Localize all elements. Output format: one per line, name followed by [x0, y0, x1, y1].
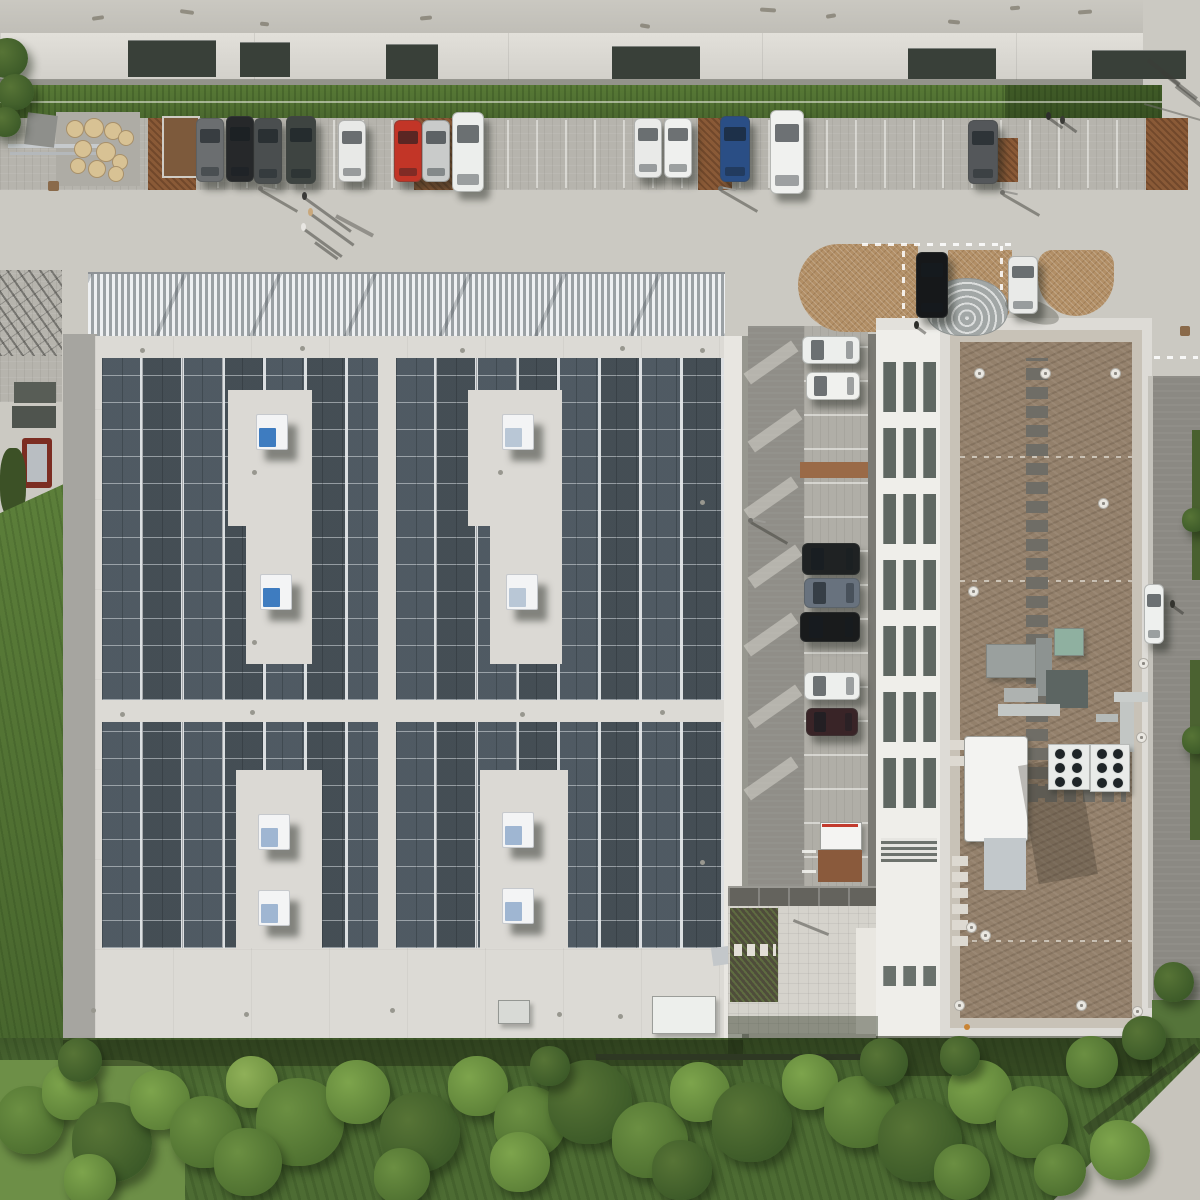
person	[1170, 600, 1175, 608]
roof-anchor-dot	[620, 346, 625, 351]
car	[254, 118, 282, 184]
tree	[58, 1038, 102, 1082]
fan-blade-icon	[1054, 762, 1066, 774]
walkway-canopy	[728, 886, 878, 908]
roof-skylight	[260, 574, 292, 610]
roof-anchor-dot	[91, 1008, 96, 1013]
car-windshield	[342, 131, 362, 144]
roof-anchor-dot	[120, 712, 125, 717]
roof-skylight	[502, 812, 534, 848]
car-rear-window	[1148, 630, 1161, 638]
fan-blade-icon	[1112, 748, 1124, 760]
cutout-tr-a	[468, 390, 562, 526]
car-windshield	[814, 712, 826, 732]
fan-unit-1	[1048, 744, 1090, 790]
lane-brown-pavers	[800, 462, 868, 478]
street-lamp-shadow	[720, 189, 758, 213]
car	[226, 116, 254, 182]
car	[968, 120, 998, 184]
office-facade-window	[883, 692, 896, 742]
roof-anchor-dot	[140, 348, 145, 353]
manhole-small	[48, 181, 59, 191]
car	[806, 708, 858, 736]
tree	[374, 1148, 430, 1200]
tree	[530, 1046, 570, 1086]
car-rear-window	[291, 169, 311, 178]
car-rear-window	[343, 168, 362, 176]
roof-vent	[1076, 1000, 1087, 1011]
roof-vent	[1110, 368, 1121, 379]
roof-anchor-dot	[498, 470, 503, 475]
tree	[1154, 962, 1194, 1002]
tree	[1182, 726, 1200, 754]
tree	[652, 1140, 712, 1200]
top-building-window	[908, 48, 996, 79]
car-windshield	[724, 127, 745, 141]
tree	[1034, 1144, 1086, 1196]
office-facade-window	[883, 966, 896, 986]
roof-skylight	[502, 888, 534, 924]
boundary-fence-dark	[596, 1054, 882, 1060]
person	[308, 208, 313, 216]
office-facade-window	[903, 560, 916, 610]
office-facade-window	[883, 758, 896, 808]
street-lamp-base	[718, 186, 723, 191]
roof-vent	[968, 586, 979, 597]
office-facade-window	[903, 494, 916, 544]
roof-anchor-dot	[252, 470, 257, 475]
skylight-glass	[261, 904, 278, 923]
planter-paver-row	[734, 944, 776, 956]
office-facade-window	[883, 626, 896, 676]
pallet-material	[70, 158, 86, 174]
car-rear-window	[846, 583, 854, 603]
roof-dirt-mark	[260, 22, 269, 27]
fan-unit-2	[1090, 744, 1130, 792]
lane-mulch-patch	[818, 850, 862, 882]
tree	[1122, 1016, 1166, 1060]
office-facade-window	[923, 758, 936, 808]
cutout-tl-a	[228, 390, 312, 526]
car-windshield	[813, 676, 826, 696]
metal-grate-2	[12, 406, 56, 428]
roof-vent	[980, 930, 991, 941]
car-rear-window	[846, 548, 854, 570]
fan-blade-icon	[1096, 748, 1108, 760]
roof-anchor-dot	[244, 1012, 249, 1017]
hvac-tent-lower	[984, 838, 1026, 890]
car-windshield	[809, 616, 823, 637]
car	[196, 118, 224, 182]
roof-skylight	[256, 414, 288, 450]
car-windshield	[457, 125, 480, 142]
tree	[214, 1128, 282, 1196]
car-windshield	[200, 129, 220, 143]
skylight-glass	[505, 428, 522, 447]
car	[804, 578, 860, 608]
solar-building-shadow	[63, 1040, 743, 1066]
roadside-green-1	[1192, 430, 1200, 580]
person	[302, 192, 307, 200]
fan-blade-icon	[1071, 762, 1083, 774]
tree	[490, 1132, 550, 1192]
metal-rail-long	[8, 144, 108, 148]
car-windshield	[811, 548, 824, 571]
parking-dash-v1	[902, 246, 905, 322]
roof-vent	[974, 368, 985, 379]
lane-parking-pavers	[804, 326, 868, 892]
car	[664, 118, 692, 178]
top-building-window	[612, 46, 700, 79]
car-rear-window	[231, 167, 250, 176]
hvac-pipe-elbow	[1096, 714, 1118, 722]
top-building-window	[240, 42, 290, 77]
street-lamp-shadow	[1002, 193, 1040, 217]
tree	[934, 1144, 990, 1200]
container-red-stripe	[822, 824, 858, 827]
pallet-material	[84, 118, 104, 138]
office-facade-window	[923, 692, 936, 742]
office-facade-window	[923, 494, 936, 544]
roof-anchor-dot	[700, 860, 705, 865]
car	[770, 110, 804, 194]
fence-mesh	[0, 270, 62, 356]
solar-ridge-structure	[88, 272, 725, 339]
fan-blade-icon	[1054, 776, 1066, 788]
office-facade-window	[923, 966, 936, 986]
car-rear-window	[399, 168, 418, 176]
car	[806, 372, 860, 400]
manhole-right	[1180, 326, 1190, 336]
car-rear-window	[845, 713, 852, 732]
office-facade-window	[903, 362, 916, 412]
car	[720, 116, 750, 182]
car-windshield	[230, 127, 250, 141]
roof-anchor-dot	[618, 1014, 623, 1019]
car	[1008, 256, 1038, 314]
car	[1144, 584, 1164, 644]
solar-parapet-left	[63, 334, 97, 1040]
car	[804, 672, 860, 700]
fan-blade-icon	[1071, 748, 1083, 760]
car-windshield	[638, 128, 658, 141]
car-rear-window	[457, 174, 479, 185]
fan-blade-icon	[1112, 777, 1124, 789]
sedum-orange-dot-1	[964, 1024, 970, 1030]
car-rear-window	[427, 168, 446, 176]
skylight-glass	[263, 588, 280, 607]
car-windshield	[775, 124, 799, 142]
office-facade-window	[903, 758, 916, 808]
street-lamp-shadow	[260, 189, 298, 213]
roof-skylight	[258, 814, 290, 850]
car-windshield	[668, 128, 688, 141]
roof-equipment-box	[652, 996, 716, 1034]
car	[394, 120, 422, 182]
car	[802, 543, 860, 575]
roof-anchor-dot	[660, 710, 665, 715]
car	[286, 116, 316, 184]
office-facade-window	[923, 626, 936, 676]
pallet-material	[118, 130, 134, 146]
roof-anchor-dot	[520, 712, 525, 717]
person	[1046, 112, 1051, 120]
road-crossing-dash	[1154, 356, 1198, 359]
pallet-material	[108, 166, 124, 182]
car	[802, 336, 860, 364]
car	[338, 120, 366, 182]
skylight-glass	[509, 588, 526, 607]
car-windshield	[426, 131, 446, 144]
roof-vent	[1136, 732, 1147, 743]
car	[422, 120, 450, 182]
skylight-glass	[505, 826, 522, 845]
tree	[0, 74, 34, 110]
tree	[1066, 1036, 1118, 1088]
office-facade-window	[923, 362, 936, 412]
lane-dash-1	[802, 850, 816, 853]
mulch-patch-5	[1146, 118, 1188, 190]
skylight-glass	[505, 902, 522, 921]
office-facade-window	[923, 428, 936, 478]
roof-anchor-dot	[390, 1008, 395, 1013]
office-facade-window	[903, 966, 916, 986]
grass-left	[0, 484, 64, 1069]
car-windshield	[972, 131, 993, 145]
car	[916, 252, 948, 318]
skylight-glass	[261, 828, 278, 847]
office-facade-window	[903, 692, 916, 742]
car-rear-window	[846, 341, 854, 360]
pallet-material	[66, 120, 84, 138]
roof-anchor-dot	[700, 348, 705, 353]
tree	[712, 1082, 792, 1162]
hvac-unit-a	[986, 644, 1036, 678]
roof-skylight	[258, 890, 290, 926]
fence-line	[0, 101, 1162, 103]
top-building-window	[128, 40, 216, 77]
roof-vent	[1138, 658, 1149, 669]
office-facade-window	[903, 428, 916, 478]
fan-blade-icon	[1071, 776, 1083, 788]
car-rear-window	[201, 167, 220, 176]
roof-skylight	[506, 574, 538, 610]
tree	[326, 1060, 390, 1124]
courtyard-shadow	[728, 1016, 878, 1058]
car-windshield	[398, 131, 418, 144]
roof-anchor-dot	[300, 346, 305, 351]
walkway-horizontal	[102, 700, 724, 722]
tent-step-path	[950, 736, 964, 766]
tree	[940, 1036, 980, 1076]
hvac-duct	[998, 704, 1060, 716]
car-windshield	[921, 263, 944, 277]
car-windshield	[258, 129, 278, 143]
gray-panel	[24, 112, 58, 147]
person	[1060, 116, 1065, 124]
car	[800, 612, 860, 642]
roof-vent	[1098, 498, 1109, 509]
metal-grate-1	[14, 382, 56, 403]
car-rear-window	[259, 169, 278, 178]
roof-vent	[1040, 368, 1051, 379]
tree	[1090, 1120, 1150, 1180]
parking-dash-top	[862, 243, 1014, 246]
car-rear-window	[669, 164, 688, 172]
scene	[0, 0, 1200, 1200]
street-lamp-base	[748, 518, 753, 523]
office-facade-window	[883, 428, 896, 478]
person	[914, 321, 919, 329]
hvac-teal-skylight	[1054, 628, 1084, 656]
car-rear-window	[775, 175, 798, 186]
office-facade-window	[883, 494, 896, 544]
facade-louvers	[881, 838, 937, 862]
fan-blade-icon	[1112, 762, 1124, 774]
walkway-vertical	[378, 358, 396, 948]
tree	[860, 1038, 908, 1086]
tree	[64, 1154, 116, 1200]
soil-box	[162, 116, 200, 178]
office-facade-window	[903, 626, 916, 676]
tent-step-path-2	[952, 856, 968, 946]
roof-anchor-dot	[557, 1012, 562, 1017]
pallet-material	[88, 160, 106, 178]
car-rear-window	[725, 167, 745, 176]
car-windshield	[813, 582, 826, 603]
office-facade-window	[923, 560, 936, 610]
street-lamp-base	[1000, 190, 1005, 195]
car-windshield	[811, 340, 824, 360]
roof-vent	[954, 1000, 965, 1011]
car-rear-window	[846, 677, 854, 696]
roof-vent	[966, 922, 977, 933]
ladder-in-container	[27, 444, 47, 482]
metal-rail-long-2	[10, 152, 106, 155]
roof-skylight	[502, 414, 534, 450]
roof-equipment-small	[498, 1000, 530, 1024]
road-curb	[1148, 376, 1153, 1008]
car-windshield	[1012, 266, 1033, 278]
roof-anchor-dot	[252, 640, 257, 645]
fan-blade-icon	[1096, 762, 1108, 774]
car-rear-window	[847, 377, 854, 396]
top-building-window	[386, 44, 438, 79]
hvac-dark-panel	[1046, 670, 1088, 708]
car-rear-window	[1013, 301, 1033, 309]
car	[634, 118, 662, 178]
paver-path-vertical	[1026, 358, 1048, 798]
office-facade-window	[883, 560, 896, 610]
hvac-parts	[1004, 688, 1038, 702]
fan-blade-icon	[1096, 777, 1108, 789]
top-building-roof	[0, 0, 1143, 35]
office-facade-window	[883, 362, 896, 412]
car-windshield	[814, 376, 826, 396]
car-windshield	[290, 128, 311, 143]
roof-anchor-dot	[460, 348, 465, 353]
top-building-window	[1092, 50, 1186, 79]
fan-blade-icon	[1054, 748, 1066, 760]
car-rear-window	[845, 617, 853, 637]
car-windshield	[1147, 594, 1161, 607]
street-lamp-base	[258, 186, 263, 191]
car-rear-window	[639, 164, 658, 172]
pallet-material	[74, 140, 92, 158]
person	[301, 223, 306, 231]
car	[452, 112, 484, 192]
lane-dash-2	[802, 870, 816, 873]
car-rear-window	[973, 169, 993, 178]
skylight-glass	[259, 428, 276, 447]
car-rear-window	[921, 303, 943, 312]
tree	[1182, 508, 1200, 532]
roof-anchor-dot	[250, 710, 255, 715]
roof-anchor-dot	[700, 500, 705, 505]
hvac-tent	[964, 736, 1028, 842]
